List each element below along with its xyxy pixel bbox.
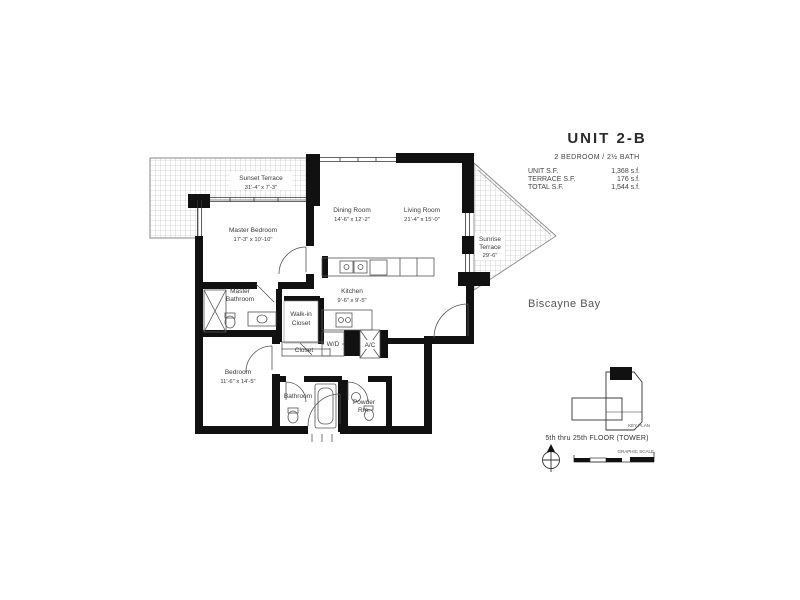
floor-plan-drawing: Sunset Terrace 31'-4" x 7'-3" Master Bed… — [0, 0, 800, 600]
unit-title: UNIT 2-B — [532, 130, 682, 147]
wall-segment — [380, 330, 388, 358]
wall-segment — [466, 286, 474, 338]
scale-segment — [590, 458, 606, 462]
wall-segment — [318, 298, 324, 344]
room-label: W/D — [327, 341, 340, 348]
wall-segment — [272, 374, 280, 432]
graphic-scale: GRAPHIC SCALE — [574, 449, 654, 462]
room-label: Bathroom — [284, 393, 312, 400]
window-line — [466, 254, 470, 272]
wall-segment — [338, 380, 348, 432]
key-plan-unit-marker — [610, 367, 632, 380]
room-label: Sunrise — [479, 236, 501, 243]
north-arrow-icon — [543, 444, 560, 472]
room-dims: 9'-6" x 9'-5" — [337, 298, 366, 304]
wall-segment — [306, 274, 314, 289]
scale-segment — [606, 458, 622, 462]
kitchen-counter-bottom — [322, 310, 372, 330]
wall-segment — [368, 376, 392, 382]
room-label: Master — [230, 288, 251, 295]
wall-segment — [344, 330, 360, 356]
area-value: 1,544 s.f. — [611, 184, 640, 192]
room-label: Walk-in — [290, 311, 312, 318]
key-plan: KEY PLAN — [572, 367, 650, 430]
area-value: 176 s.f. — [617, 176, 640, 184]
floor-note: 5th thru 25th FLOOR (TOWER) — [533, 435, 661, 442]
wall-segment — [386, 382, 392, 432]
bathtub — [315, 384, 336, 428]
key-plan-lines — [606, 398, 642, 412]
wall-segment — [306, 154, 320, 206]
room-label: Bedroom — [225, 369, 251, 376]
wall-segment — [195, 330, 277, 337]
scale-segment — [574, 458, 590, 462]
room-label: Closet — [292, 320, 311, 327]
room-label: Closet — [295, 347, 314, 354]
water-label: Biscayne Bay — [528, 298, 601, 310]
wall-segment — [284, 296, 320, 301]
wall-segment — [304, 376, 342, 382]
room-label: Terrace — [479, 244, 501, 251]
room-label: Powder — [353, 399, 376, 406]
room-label: Bathroom — [226, 296, 254, 303]
sunset-terrace-area — [150, 158, 312, 238]
area-label: TOTAL S.F. — [528, 184, 564, 192]
wall-segment — [322, 256, 328, 278]
area-row: TOTAL S.F. 1,544 s.f. — [528, 184, 640, 192]
area-table: UNIT S.F. 1,368 s.f. TERRACE S.F. 176 s.… — [528, 168, 640, 192]
area-label: UNIT S.F. — [528, 168, 558, 176]
entry-step-marks — [312, 434, 332, 442]
room-dims: 31'-4" x 7'-3" — [245, 185, 277, 191]
key-plan-wing — [572, 398, 622, 420]
area-row: UNIT S.F. 1,368 s.f. — [528, 168, 640, 176]
bathroom-toilet — [288, 408, 298, 423]
key-plan-tower — [606, 372, 642, 430]
room-label: Sunset Terrace — [239, 175, 283, 182]
scale-segment — [630, 457, 654, 462]
room-label: Master Bedroom — [229, 227, 277, 234]
kitchen-counter-top — [322, 258, 434, 276]
door-arc — [308, 394, 340, 426]
unit-subtitle: 2 BEDROOM / 2½ BATH — [532, 154, 662, 161]
wall-segment — [203, 196, 209, 204]
room-dims: 11'-6" x 14'-5" — [220, 379, 255, 385]
room-dims: 14'-6" x 12'-2" — [334, 217, 370, 223]
area-value: 1,368 s.f. — [611, 168, 640, 176]
wall-segment — [272, 337, 280, 344]
room-dims: 17'-3" x 10'-10" — [234, 237, 273, 243]
door-leaf — [256, 284, 274, 302]
room-label: Kitchen — [341, 288, 363, 295]
floorplan-page: Sunset Terrace 31'-4" x 7'-3" Master Bed… — [0, 0, 800, 600]
room-label: A/C — [365, 342, 376, 349]
wall-segment — [396, 153, 472, 163]
room-dims: 21'-4" x 15'-0" — [404, 217, 440, 223]
key-plan-label: KEY PLAN — [628, 423, 650, 428]
window-line — [466, 213, 470, 236]
master-bath-toilet — [225, 313, 235, 328]
door-arc — [434, 304, 468, 338]
room-dims: 29'-6" — [483, 253, 498, 259]
graphic-scale-label: GRAPHIC SCALE — [617, 449, 654, 454]
door-arc — [279, 247, 306, 274]
wall-segment — [462, 236, 474, 254]
wall-segment — [388, 338, 424, 344]
wall-segment — [306, 206, 314, 246]
room-label: Dining Room — [333, 207, 371, 214]
wall-segment — [458, 272, 490, 286]
wall-segment — [462, 153, 474, 213]
wall-segment — [280, 376, 286, 382]
room-label: Rm. — [358, 407, 370, 414]
area-row: TERRACE S.F. 176 s.f. — [528, 176, 640, 184]
wall-segment — [424, 336, 432, 434]
shower-stall — [204, 290, 226, 332]
area-label: TERRACE S.F. — [528, 176, 575, 184]
wall-segment — [195, 426, 308, 434]
room-label: Living Room — [404, 207, 440, 214]
wall-segment — [428, 336, 474, 344]
master-bath-vanity — [248, 312, 276, 326]
